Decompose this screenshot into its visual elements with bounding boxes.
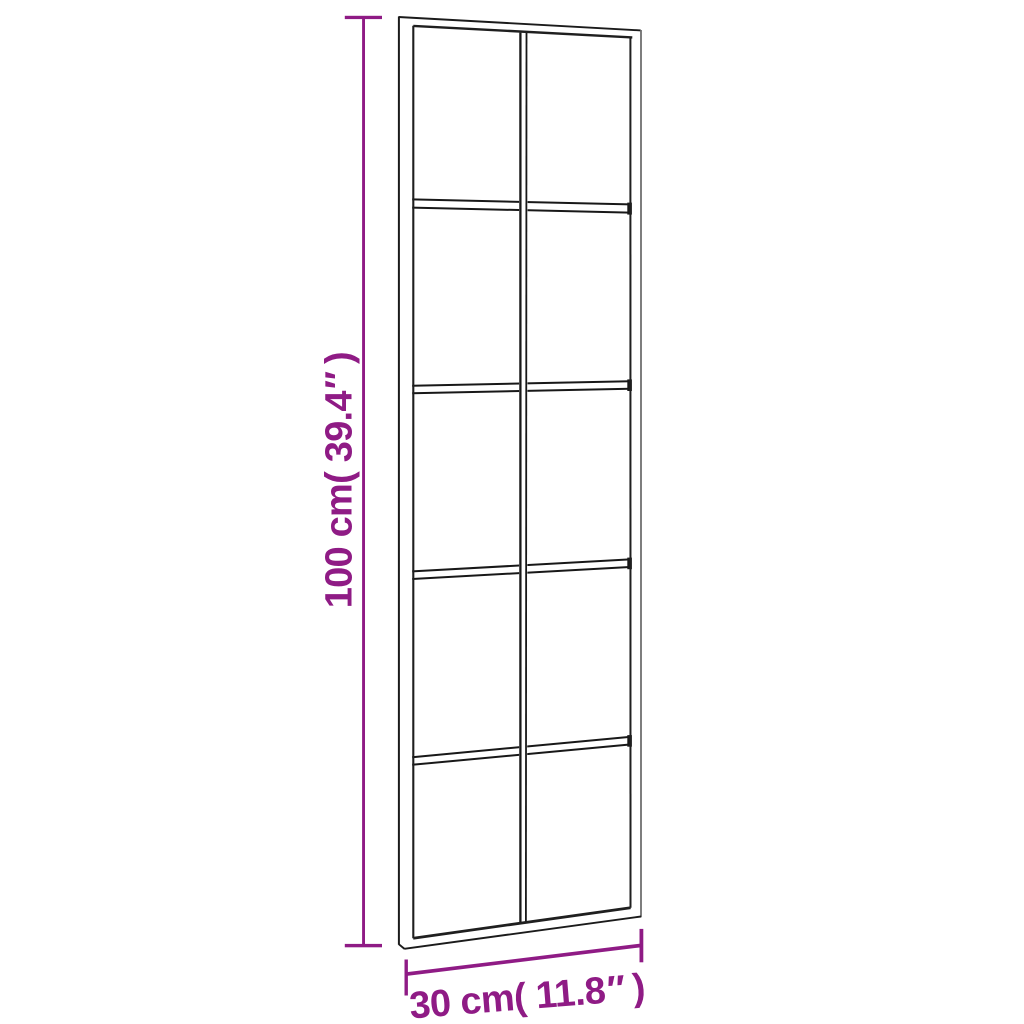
svg-text:100 cm( 39.4″ ): 100 cm( 39.4″ ) (318, 352, 360, 608)
svg-text:30 cm( 11.8″ ): 30 cm( 11.8″ ) (408, 967, 646, 1024)
